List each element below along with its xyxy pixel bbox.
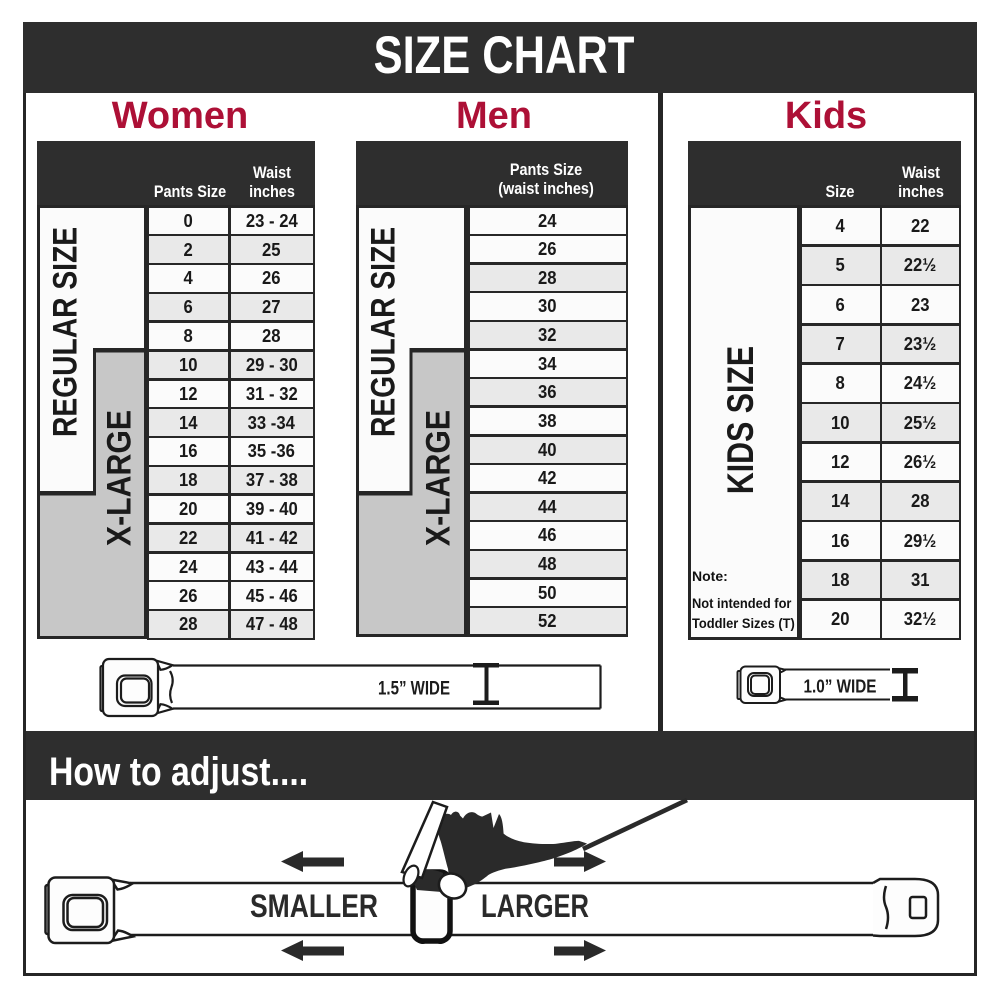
svg-text:LARGER: LARGER — [481, 888, 589, 924]
svg-text:SMALLER: SMALLER — [250, 888, 378, 924]
svg-text:1.0” WIDE: 1.0” WIDE — [804, 677, 877, 697]
svg-text:1.5” WIDE: 1.5” WIDE — [378, 679, 450, 700]
